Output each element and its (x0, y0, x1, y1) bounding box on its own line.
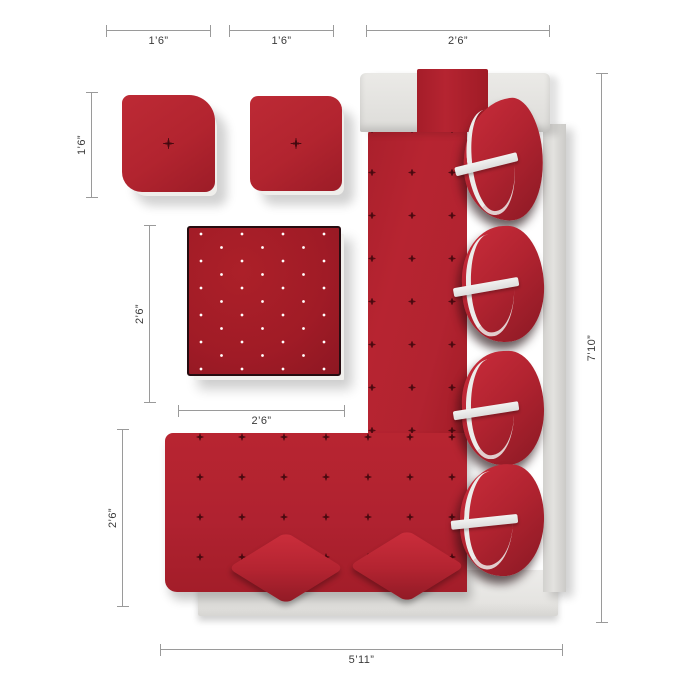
dim-label: 1’6” (106, 35, 211, 47)
small-ottoman-left (122, 95, 215, 192)
dim-storage-ottoman-width: 2’6” (178, 410, 345, 411)
dim-sofa-length: 7’10” (601, 73, 602, 623)
dim-ottoman2-width: 1’6” (229, 30, 334, 31)
dim-label: 1’6” (76, 135, 88, 155)
tufted-storage-ottoman (187, 226, 341, 376)
back-pillow-2 (460, 225, 546, 344)
dim-label: 1’6” (229, 35, 334, 47)
sofa-backrest-rail (543, 124, 566, 592)
dim-label: 2’6” (134, 304, 146, 324)
dim-label: 2’6” (178, 415, 345, 427)
dim-ottoman1-width: 1’6” (106, 30, 211, 31)
back-pillow-4 (458, 463, 546, 578)
dim-ottoman-depth: 1’6” (91, 92, 92, 198)
dim-label: 2’6” (366, 35, 550, 47)
dim-label: 7’10” (586, 335, 598, 361)
pillow-strap (453, 401, 519, 420)
pillow-strap (453, 277, 519, 297)
dim-chaise-width: 2’6” (366, 30, 550, 31)
pillow-strap (451, 514, 519, 530)
sofa-dimension-diagram: 1’6” 1’6” 2’6” 1’6” 2’6” 2’6” 2’6” 7’10”… (0, 0, 679, 679)
dim-sofa-width: 5’11” (160, 649, 563, 650)
sofa-chaise-seat (368, 130, 467, 434)
pillow-strap (454, 152, 518, 176)
dim-storage-ottoman-depth: 2’6” (149, 225, 150, 403)
small-ottoman-right (250, 96, 342, 191)
back-pillow-3 (461, 350, 545, 465)
dim-label: 5’11” (160, 654, 563, 666)
dim-sofa-seat-depth: 2’6” (122, 429, 123, 607)
dim-label: 2’6” (107, 508, 119, 528)
